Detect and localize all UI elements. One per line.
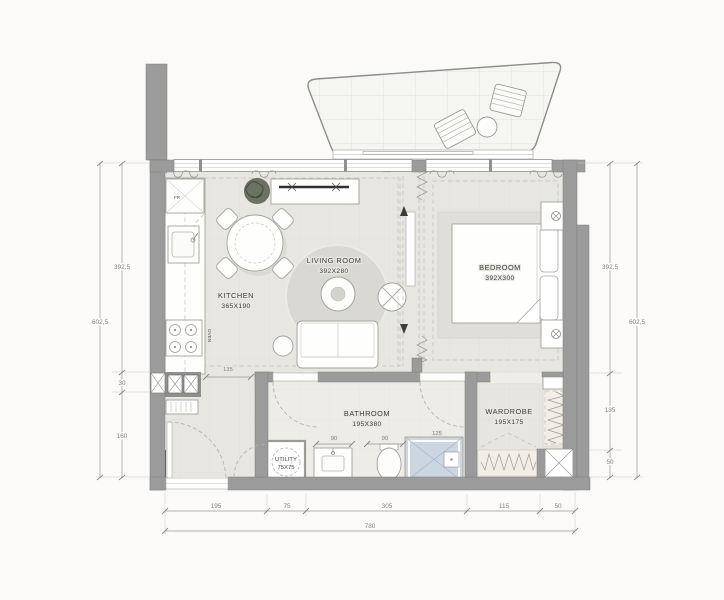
window-bedroom [426,160,552,172]
stove [166,320,202,356]
dim-left-1: 30 [118,380,126,387]
shaft-box [168,375,182,393]
dim-right-total: 602,5 [629,319,645,326]
wall-bath-top-b [318,372,420,382]
wardrobe-threshold [490,373,542,383]
dim-right-0: 392,5 [602,264,618,271]
plant [244,178,270,204]
dim-bottom-0: 195 [211,503,222,510]
room-size-bedroom: 392X300 [485,275,514,282]
balcony-table [477,117,497,137]
room-label-utility: UTILITY [275,457,297,463]
pillow [540,276,558,320]
dining-set [215,207,295,280]
wall-bath-wardrobe [465,372,477,477]
shower [405,437,463,482]
toilet [377,444,401,480]
oven-label: OVEN [207,329,212,342]
room-label-kitchen: KITCHEN [218,291,254,300]
coffee-table-inner [331,287,345,301]
room-size-living: 392X280 [319,268,348,275]
wall-wardrobe-top [542,372,563,377]
pillow [540,228,558,272]
wall-shaft-30 [151,373,165,393]
utility-room: UTILITY 75X75 [267,441,305,479]
room-size-kitchen: 365X190 [221,303,250,310]
side-table [273,336,293,356]
tv-console [271,179,359,204]
dim-right-2: 50 [606,459,614,466]
svg-text:135: 135 [223,367,233,373]
dim-right-1: 135 [605,407,616,414]
balcony-slider [333,150,533,159]
dim-bottom-4: 50 [554,503,562,510]
bathroom-vanity [314,448,352,480]
room-label-living: LIVING ROOM [307,256,362,265]
armchair [378,283,406,311]
wall-right-outer [577,225,589,478]
wall-left [150,160,165,490]
wall-hall-divider [255,372,268,477]
dim-left-total: 602,5 [92,319,108,326]
dining-table [227,215,283,271]
room-label-bedroom: BEDROOM [479,263,521,272]
window-living [174,160,412,172]
dim-bottom-1: 75 [283,503,291,510]
entry-opening [166,478,228,489]
dim-left-0: 392,5 [114,264,130,271]
wall-partition-stub [412,358,422,372]
wall-bottom [228,477,590,490]
floorplan-svg: FR OVEN KITCHEN 365X190 [0,0,724,600]
shaft-box-50 [545,449,573,477]
wall-bottom-left [150,477,166,490]
wall-top-corner-left [150,160,174,172]
kitchen-sink [168,226,199,263]
wall-stub-topleft [146,64,167,160]
partition-panel [406,212,415,286]
sofa [297,321,378,368]
room-label-bathroom: BATHROOM [344,409,390,418]
entry-door-open-leaf [167,422,172,478]
dim-bottom-total: 780 [365,523,376,530]
balcony [308,62,561,155]
shoe-cabinet [166,400,198,414]
wall-right [563,160,577,490]
wall-top-pier [412,160,426,172]
svg-text:90: 90 [382,436,388,442]
dim-bottom-2: 305 [382,503,393,510]
floorplan-page: FR OVEN KITCHEN 365X190 [0,0,724,600]
fridge-label: FR [174,195,181,200]
shaft-box [184,375,198,393]
svg-text:90: 90 [331,436,337,442]
room-label-wardrobe: WARDROBE [485,407,532,416]
svg-text:125: 125 [432,431,442,437]
wall-shaft-stub [537,449,545,477]
dim-interior-shower: 125 [432,431,442,437]
dim-bottom-3: 115 [499,503,510,510]
dim-left-2: 160 [117,433,128,440]
room-size-bathroom: 195X380 [352,421,381,428]
room-size-utility: 75X75 [277,465,295,471]
room-size-wardrobe: 195X175 [494,419,523,426]
